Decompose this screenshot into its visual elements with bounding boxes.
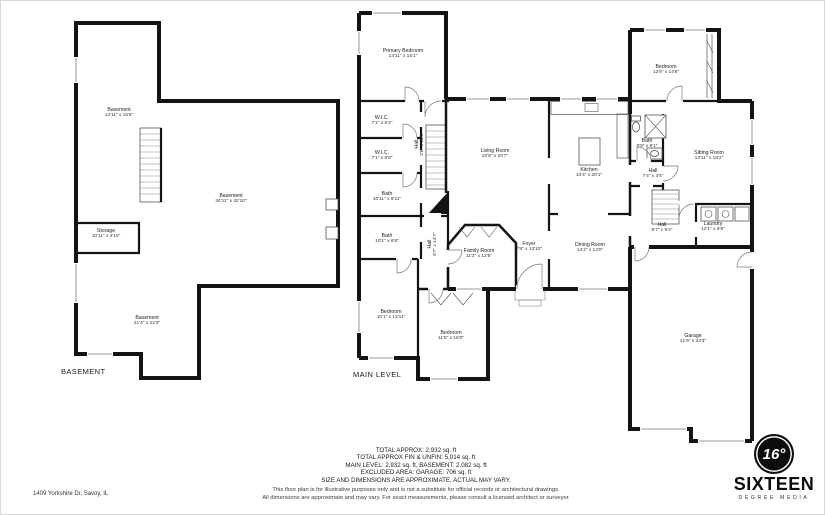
summary-line: EXCLUDED AREA: GARAGE: 706 sq. ft	[201, 469, 631, 476]
basement-title: BASEMENT	[61, 367, 105, 376]
basement-walls	[73, 23, 339, 378]
brand-tagline: DEGREE MEDIA	[727, 495, 821, 501]
summary-line: SIZE AND DIMENSIONS ARE APPROXIMATE, ACT…	[201, 477, 631, 484]
summary-line: MAIN LEVEL: 2,932 sq. ft, BASEMENT: 2,08…	[201, 462, 631, 469]
main-level-walls	[356, 10, 756, 445]
summary-line: TOTAL APPROX: 2,932 sq. ft	[201, 447, 631, 454]
address-text: 1409 Yorkshire Dr, Savoy, IL	[33, 491, 108, 497]
disclaimer-line: This floor plan is for illustrative purp…	[201, 487, 631, 495]
brand-name: SIXTEEN	[727, 475, 821, 493]
summary-line: TOTAL APPROX FIN & UNFIN: 5,014 sq. ft	[201, 454, 631, 461]
disclaimer-block: This floor plan is for illustrative purp…	[201, 487, 631, 503]
main-level-title: MAIN LEVEL	[353, 370, 401, 379]
floor-plan-drawing	[1, 1, 825, 515]
floor-plan-page: Basement14'11" x 15'6"Basement34'11" x 3…	[0, 0, 825, 515]
summary-block: TOTAL APPROX: 2,932 sq. ft TOTAL APPROX …	[201, 447, 631, 503]
disclaimer-line: All dimensions are approximate and may v…	[201, 495, 631, 503]
brand-logo: 16° SIXTEEN DEGREE MEDIA	[727, 434, 821, 501]
brand-16-degree-icon: 16°	[754, 434, 794, 474]
